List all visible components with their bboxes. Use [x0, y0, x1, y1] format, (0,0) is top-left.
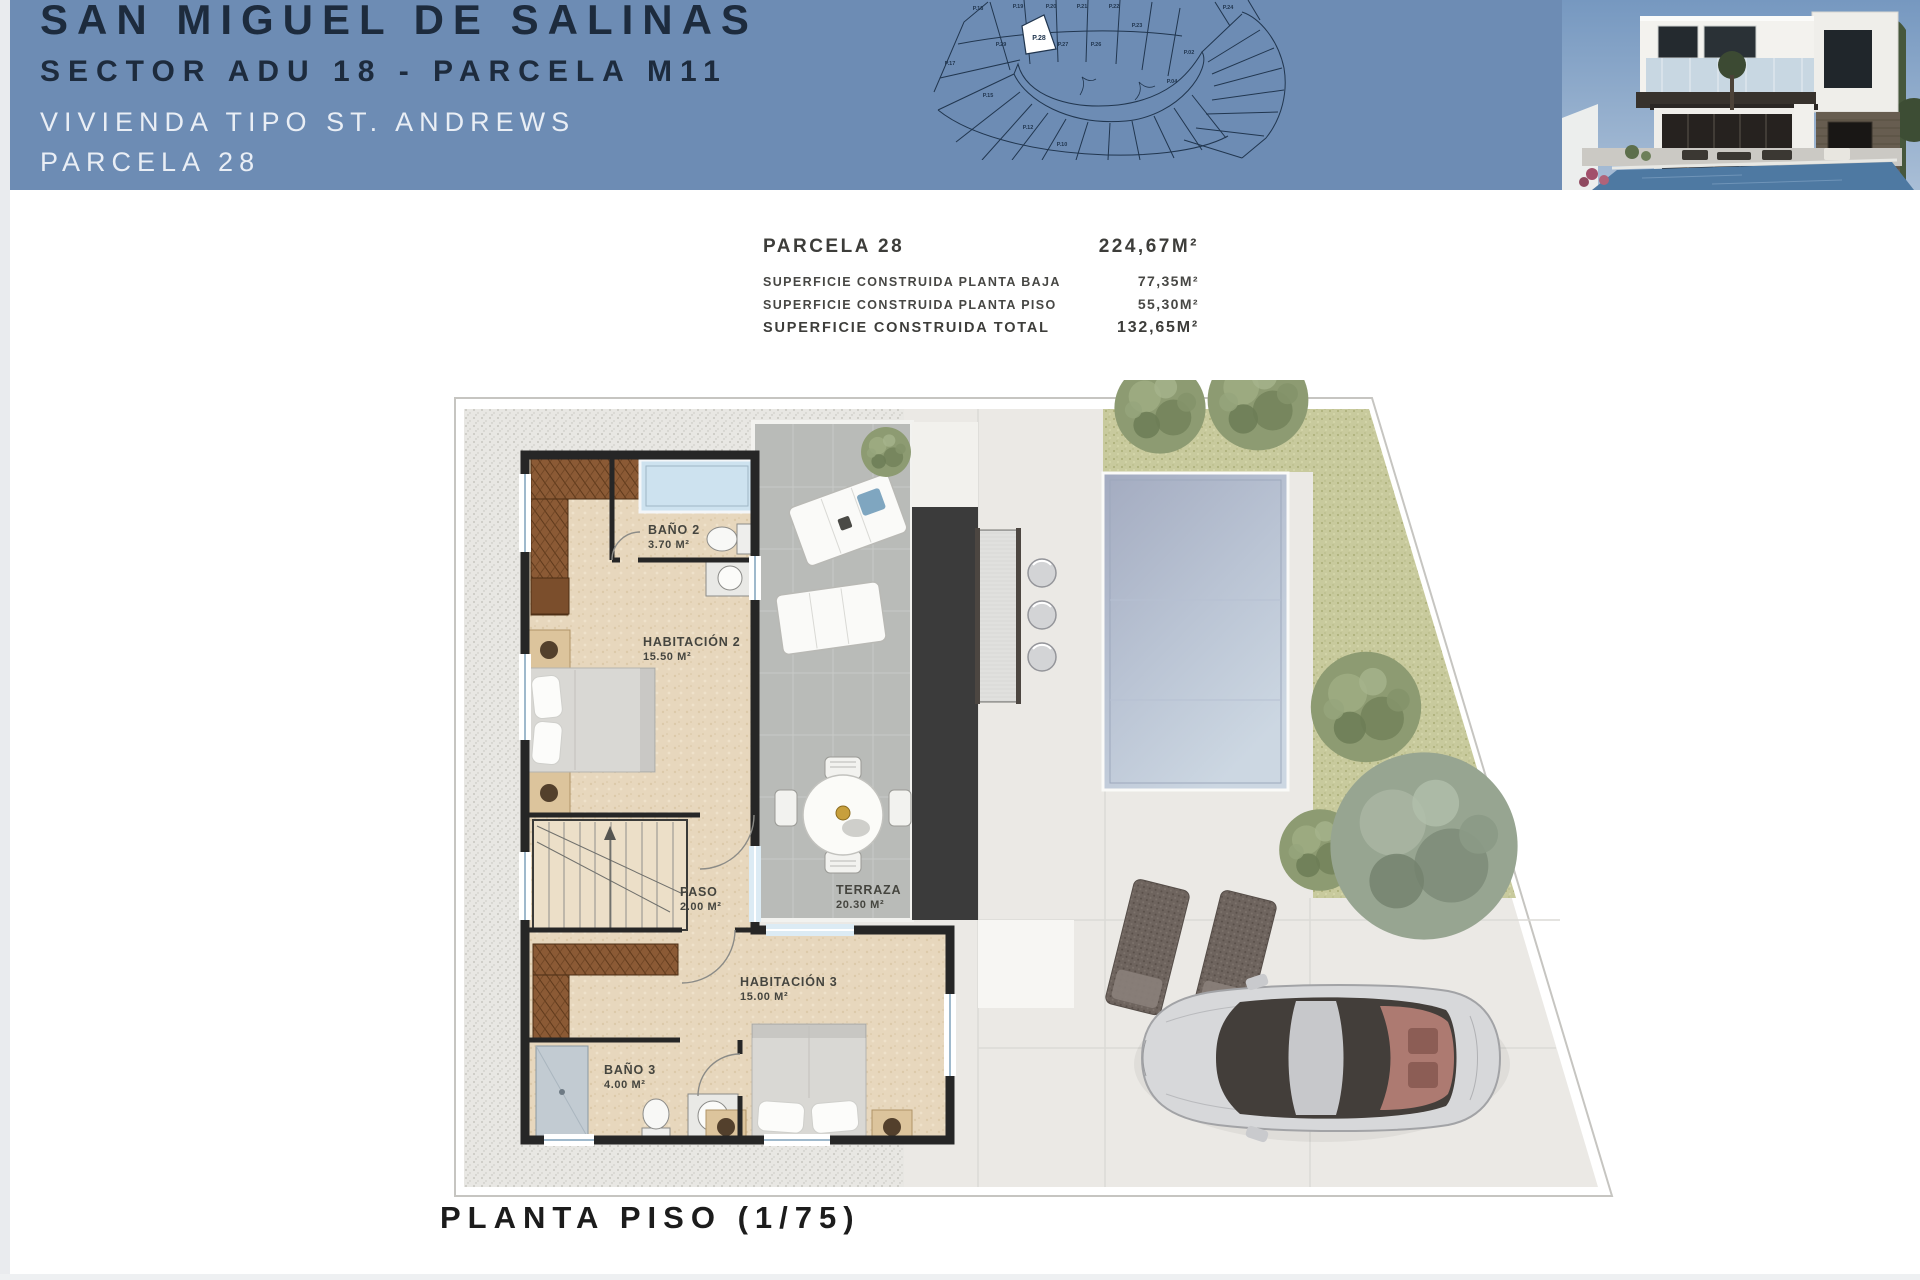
brochure-page: SAN MIGUEL DE SALINAS SECTOR ADU 18 - PA…	[0, 0, 1920, 1280]
table-row: SUPERFICIE CONSTRUIDA PLANTA PISO 55,30M…	[763, 296, 1199, 312]
room-label-habitacion3: HABITACIÓN 3	[740, 974, 838, 989]
page-left-edge	[0, 0, 10, 1280]
room-label-terraza: TERRAZA	[836, 883, 901, 897]
page-bottom-edge	[0, 1274, 1920, 1280]
room-area-bano2: 3.70 M²	[648, 539, 690, 551]
tree-front	[1718, 51, 1746, 79]
parcel-label: P.24	[1223, 5, 1235, 11]
header-titles: SAN MIGUEL DE SALINAS SECTOR ADU 18 - PA…	[40, 0, 758, 182]
table-row: SUPERFICIE CONSTRUIDA TOTAL 132,65M²	[763, 319, 1199, 337]
page-subtitle-vivienda: VIVIENDA TIPO ST. ANDREWS	[40, 102, 758, 142]
room-label-habitacion2: HABITACIÓN 2	[643, 634, 741, 649]
tree	[1311, 652, 1421, 762]
table-row: SUPERFICIE CONSTRUIDA PLANTA BAJA 77,35M…	[763, 273, 1199, 289]
parcel-label: P.21	[1077, 4, 1088, 10]
row-value: 55,30M²	[1138, 296, 1199, 312]
parcel-label: P.10	[1057, 142, 1068, 148]
car-interior	[1380, 1006, 1454, 1110]
table-row: PARCELA 28 224,67M²	[763, 236, 1199, 258]
room-area-paso: 2.00 M²	[680, 901, 722, 913]
parcel-label: P.15	[983, 93, 994, 99]
site-map-lines	[934, 0, 1285, 160]
tree-large	[1330, 752, 1517, 939]
row-label: SUPERFICIE CONSTRUIDA PLANTA PISO	[763, 298, 1057, 312]
bar-stools	[1028, 559, 1056, 671]
page-subtitle-sector: SECTOR ADU 18 - PARCELA M11	[40, 48, 758, 96]
room-label-paso: PASO	[680, 885, 718, 899]
row-value: 77,35M²	[1138, 273, 1199, 289]
roof-lower	[978, 920, 1074, 1008]
parcel-label: P.02	[1184, 50, 1195, 56]
parcel-label: P.18	[973, 6, 984, 12]
parcel-label: P.23	[1132, 23, 1143, 29]
room-label-bano2: BAÑO 2	[648, 522, 700, 537]
row-label: SUPERFICIE CONSTRUIDA PLANTA BAJA	[763, 275, 1061, 289]
site-map-parcel-labels: P.18 P.19 P.20 P.21 P.22 P.23 P.24 P.29 …	[945, 4, 1235, 148]
parcel-label-highlight: P.28	[1032, 35, 1046, 42]
pool	[1103, 473, 1288, 790]
car-roof	[1289, 1001, 1344, 1115]
row-label: PARCELA 28	[763, 236, 904, 258]
plan-scale-label: PLANTA PISO (1/75)	[440, 1200, 861, 1236]
room-area-terraza: 20.30 M²	[836, 899, 884, 911]
room-area-habitacion3: 15.00 M²	[740, 991, 788, 1003]
room-area-bano3: 4.00 M²	[604, 1079, 646, 1091]
site-plan-map: P.28 P.18 P.19 P.20 P.21 P.22 P.23 P.24 …	[930, 0, 1360, 160]
parcel-label: P.29	[996, 42, 1007, 48]
page-title: SAN MIGUEL DE SALINAS	[40, 0, 758, 48]
floor-plan: BAÑO 2 3.70 M² HABITACIÓN 2 15.50 M² PAS…	[380, 380, 1740, 1210]
parcel-label: P.22	[1109, 4, 1120, 10]
parcel-label: P.26	[1091, 42, 1102, 48]
row-label: SUPERFICIE CONSTRUIDA TOTAL	[763, 320, 1050, 336]
area-table: PARCELA 28 224,67M² SUPERFICIE CONSTRUID…	[763, 236, 1199, 337]
roof-strip	[912, 422, 978, 507]
void-dark-band	[912, 507, 978, 920]
parcel-label: P.20	[1046, 4, 1057, 10]
parcel-label: P.17	[945, 61, 956, 67]
parcel-label: P.27	[1058, 42, 1069, 48]
room-label-bano3: BAÑO 3	[604, 1062, 656, 1077]
stairs	[533, 820, 687, 930]
parcel-label: P.04	[1167, 79, 1179, 85]
row-value: 132,65M²	[1117, 319, 1199, 337]
row-value: 224,67M²	[1099, 236, 1199, 258]
page-subtitle-parcela: PARCELA 28	[40, 142, 758, 182]
room-area-habitacion2: 15.50 M²	[643, 651, 691, 663]
car	[1134, 973, 1510, 1143]
outdoor-bar-counter	[975, 528, 1021, 704]
parcel-label: P.19	[1013, 4, 1024, 10]
tree-terrace	[861, 427, 911, 477]
villa-photo	[1562, 0, 1920, 190]
parcel-label: P.12	[1023, 125, 1034, 131]
